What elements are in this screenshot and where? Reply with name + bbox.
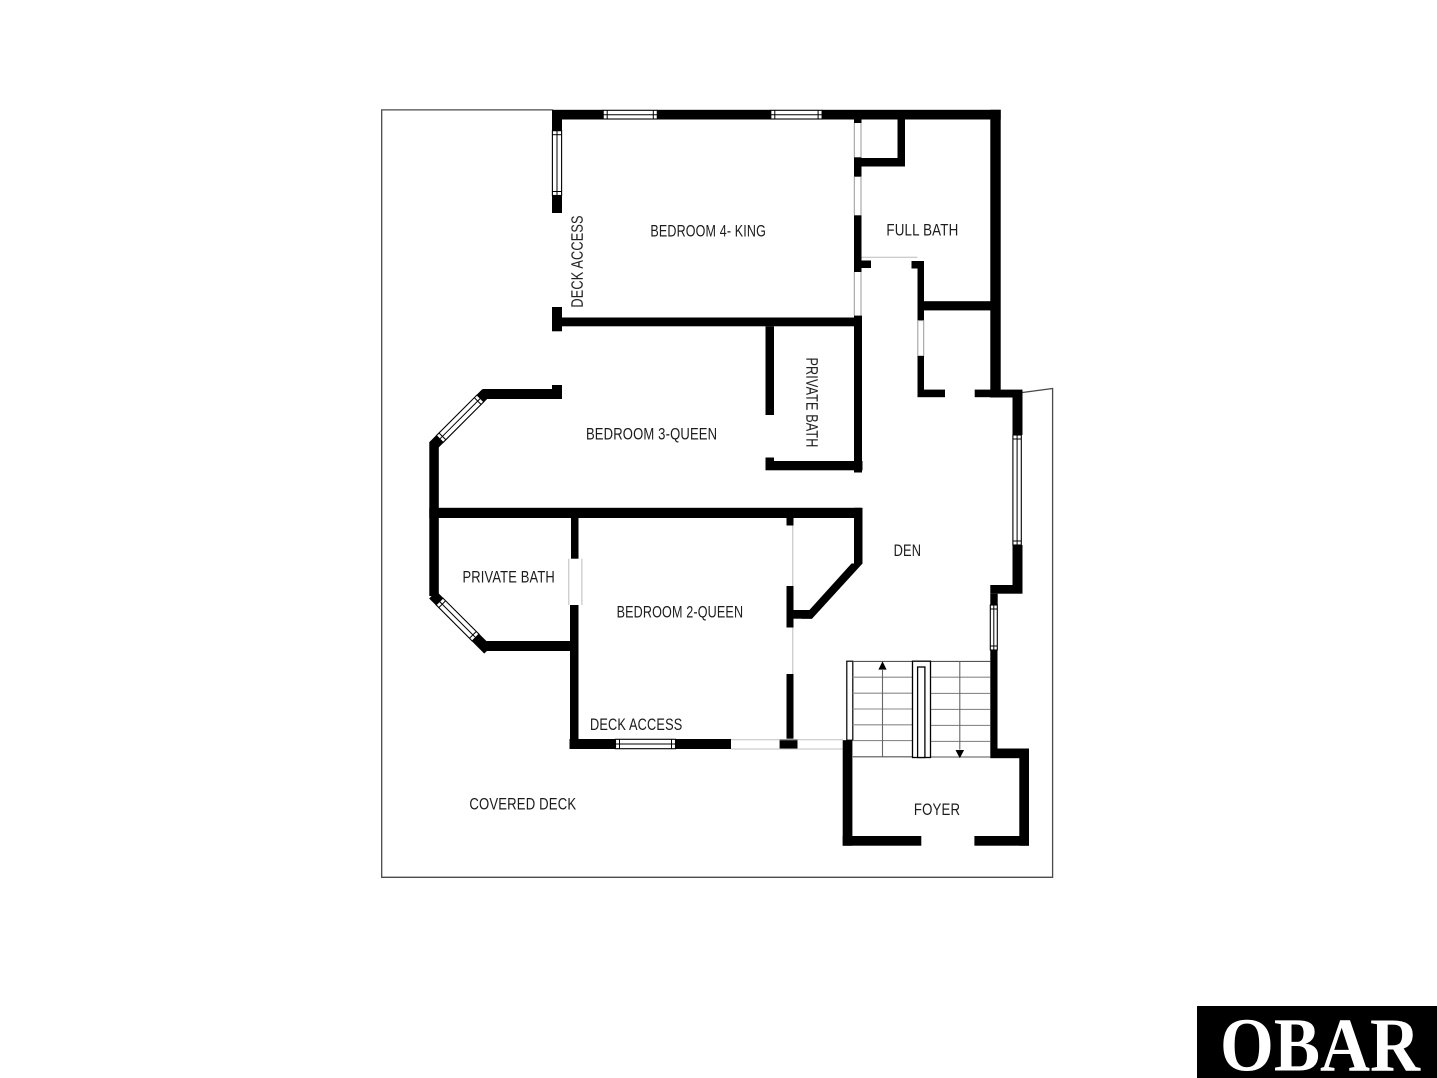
svg-text:OBAR: OBAR bbox=[1220, 1004, 1421, 1078]
svg-text:PRIVATE BATH: PRIVATE BATH bbox=[803, 358, 821, 448]
svg-text:DECK ACCESS: DECK ACCESS bbox=[569, 215, 587, 307]
svg-text:BEDROOM 2-QUEEN: BEDROOM 2-QUEEN bbox=[617, 603, 744, 621]
svg-text:BEDROOM 4- KING: BEDROOM 4- KING bbox=[650, 223, 766, 241]
svg-text:COVERED DECK: COVERED DECK bbox=[469, 795, 576, 813]
svg-text:BEDROOM 3-QUEEN: BEDROOM 3-QUEEN bbox=[586, 426, 717, 444]
svg-text:FULL BATH: FULL BATH bbox=[886, 222, 958, 240]
svg-text:DECK ACCESS: DECK ACCESS bbox=[590, 716, 683, 734]
svg-text:DEN: DEN bbox=[894, 542, 922, 560]
svg-text:FOYER: FOYER bbox=[914, 801, 960, 819]
svg-text:PRIVATE BATH: PRIVATE BATH bbox=[462, 568, 555, 586]
